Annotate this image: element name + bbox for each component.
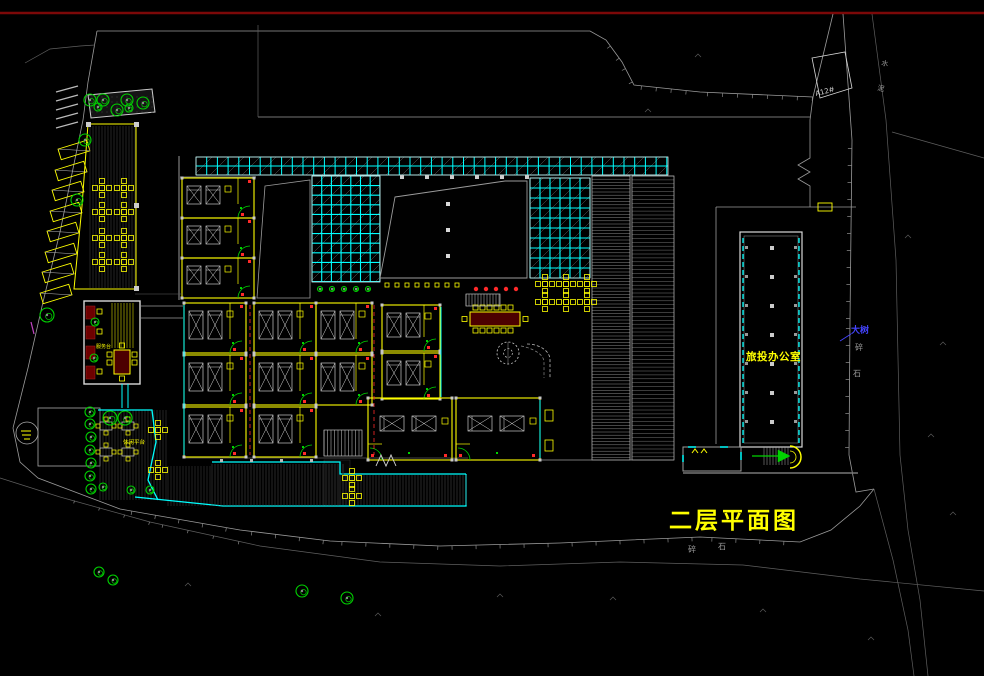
road-top-boundary — [97, 31, 813, 97]
tree — [85, 445, 95, 455]
office-building — [740, 232, 802, 447]
grass-mark — [610, 597, 616, 600]
terrace-label: 休闲平台 — [123, 438, 146, 446]
gravel-label-b1: 碎 — [688, 544, 696, 554]
guest-room-unit — [455, 397, 542, 462]
grass-mark — [185, 583, 191, 586]
cyan-deck-border — [135, 474, 466, 506]
table-set — [115, 229, 134, 248]
tree — [86, 484, 96, 494]
tree — [85, 419, 95, 429]
road-right-branch — [892, 132, 984, 158]
svg-text:休闲平台: 休闲平台 — [123, 438, 146, 446]
crosswalk-stripe — [56, 95, 78, 101]
curved-path — [527, 344, 550, 378]
kiosk — [683, 447, 741, 471]
tree — [296, 585, 308, 597]
tree-pit-mark — [21, 431, 31, 439]
table-set — [557, 293, 576, 312]
sofa — [86, 306, 95, 319]
tree — [79, 134, 91, 146]
parking-stall — [52, 181, 84, 200]
svg-text:石: 石 — [853, 369, 861, 378]
cement-label-1: 水 — [881, 58, 890, 68]
tree — [318, 287, 323, 292]
tree — [85, 407, 95, 417]
tree — [366, 287, 371, 292]
grass-mark — [375, 613, 381, 616]
big-tree-label: 大树 — [851, 324, 869, 336]
tree — [94, 567, 104, 577]
hall-column — [446, 254, 450, 258]
hall-small — [257, 180, 310, 298]
table-set — [115, 253, 134, 272]
tree — [118, 411, 132, 425]
gravel-label-b2: 石 — [718, 542, 726, 551]
7 — [770, 246, 774, 424]
tree — [103, 411, 117, 425]
office-label: 旅投办公室 — [746, 350, 801, 363]
tree — [341, 592, 353, 604]
guest-room-unit — [315, 354, 374, 407]
crosswalk-stripe — [56, 104, 78, 110]
guest-room-unit — [253, 302, 318, 355]
svg-text:碎: 碎 — [688, 544, 696, 554]
deck-corner — [134, 122, 139, 127]
parcel-bracket — [798, 120, 810, 207]
spiral-stair — [497, 342, 519, 364]
road-ticks-outer — [74, 501, 239, 545]
guest-room-unit — [315, 302, 374, 355]
table-set — [115, 179, 134, 198]
6 — [400, 175, 529, 179]
grass-mark — [760, 609, 766, 612]
cad-viewport[interactable]: 二层平面图旅投办公室大树碎石碎石A12#水泥休闲平台服务台 — [0, 0, 984, 676]
chair — [97, 309, 102, 314]
tree — [86, 458, 96, 468]
hall-main — [380, 181, 527, 278]
7 — [794, 246, 797, 423]
deck-stripes-connector — [168, 466, 210, 506]
svg-text:石: 石 — [718, 542, 726, 551]
office-building-inner — [744, 236, 798, 443]
ramp-half-round-inner — [790, 451, 796, 463]
road-right-outer — [872, 14, 928, 676]
pergola-grid — [196, 157, 668, 175]
deck-corner — [134, 203, 139, 208]
tree — [342, 287, 347, 292]
deck-stripes-south — [212, 464, 338, 506]
louver-roof-strip — [632, 176, 674, 460]
table-set — [536, 275, 555, 294]
guest-room-unit — [183, 406, 248, 459]
svg-text:碎: 碎 — [855, 342, 863, 352]
crosswalk-stripe — [56, 86, 78, 92]
hall-column — [446, 228, 450, 232]
skylight-grid-east — [530, 178, 590, 278]
guest-room-unit — [381, 304, 442, 353]
ramp-half-round — [790, 446, 801, 468]
guest-room-unit — [253, 354, 318, 407]
crosswalk-stripe — [56, 122, 78, 128]
deck-corner — [86, 122, 91, 127]
gravel-label-v2: 石 — [853, 369, 861, 378]
deck-stripes-south — [340, 475, 466, 505]
table-set — [578, 293, 597, 312]
parking-stall — [50, 202, 82, 221]
tree — [354, 287, 359, 292]
grass-mark — [950, 512, 956, 515]
road-bottom-outer — [0, 478, 984, 591]
balcony-mark — [545, 440, 553, 451]
floor-plan-canvas[interactable]: 二层平面图旅投办公室大树碎石碎石A12#水泥休闲平台服务台 — [0, 0, 984, 676]
stair — [466, 294, 500, 306]
tea-table — [107, 343, 137, 381]
tree — [85, 471, 95, 481]
guest-room-unit — [183, 302, 248, 355]
balcony-mark — [545, 410, 553, 421]
grass-mark — [940, 342, 946, 345]
floor-plan-title: 二层平面图 — [669, 508, 799, 534]
stair — [112, 303, 133, 348]
big-tree-leader — [840, 334, 851, 341]
svg-text:水: 水 — [881, 58, 890, 68]
tree-pit — [16, 422, 38, 444]
svg-text:旅投办公室: 旅投办公室 — [746, 350, 801, 363]
parking-stall — [45, 243, 77, 262]
grass-mark — [695, 54, 701, 57]
guest-room-unit — [253, 406, 318, 459]
banquet-table — [462, 305, 528, 333]
table-set — [115, 203, 134, 222]
stair — [324, 430, 362, 456]
cement-label-2: 泥 — [877, 84, 886, 93]
guest-room-unit — [181, 177, 256, 220]
guest-room-unit — [367, 397, 454, 462]
table-set — [536, 293, 555, 312]
chair — [97, 329, 102, 334]
hall-column — [446, 202, 450, 206]
table-set — [149, 421, 168, 440]
7 — [745, 246, 748, 423]
road-topleft-corner — [25, 45, 95, 63]
guest-room-unit — [181, 217, 256, 260]
tree — [40, 308, 54, 322]
table-set — [557, 275, 576, 294]
sofa — [86, 366, 95, 379]
parking-stall — [47, 222, 79, 241]
sofa — [86, 326, 95, 339]
tree — [86, 432, 96, 442]
service-label: 服务台 — [96, 343, 111, 350]
svg-text:二层平面图: 二层平面图 — [669, 508, 799, 534]
gravel-label-v1: 碎 — [855, 342, 863, 352]
road-right-inner — [843, 14, 874, 492]
svg-text:大树: 大树 — [851, 324, 869, 336]
grass-mark — [928, 434, 934, 437]
parking-stall — [42, 263, 74, 282]
tree — [127, 486, 135, 494]
grass-mark — [905, 235, 911, 238]
road-ticks-right — [845, 149, 852, 448]
5 — [474, 287, 518, 291]
grass-mark — [497, 594, 503, 597]
curved-path — [521, 346, 544, 378]
grass-mark — [868, 637, 874, 640]
tree — [146, 486, 154, 494]
survey-mark — [31, 322, 34, 334]
svg-text:服务台: 服务台 — [96, 343, 111, 350]
tree — [108, 575, 118, 585]
louver-roof-strip — [592, 176, 630, 460]
chair — [97, 369, 102, 374]
tree — [330, 287, 335, 292]
grass-mark — [645, 109, 651, 112]
kiosk-mark — [692, 449, 707, 453]
deck-corner — [134, 286, 139, 291]
skylight-grid-west — [312, 176, 380, 282]
tree — [71, 194, 83, 206]
8 — [385, 283, 459, 287]
guest-room-unit — [183, 354, 248, 407]
guest-room-unit — [381, 352, 442, 401]
guest-room-unit — [181, 257, 256, 300]
crosswalk-stripe — [56, 113, 78, 119]
svg-text:泥: 泥 — [877, 84, 886, 93]
